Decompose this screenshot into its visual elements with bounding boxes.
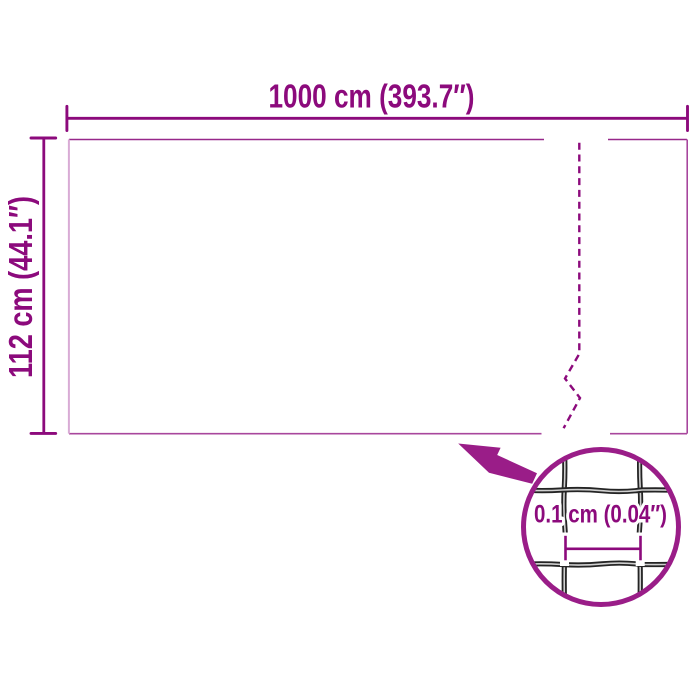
svg-text:0.1 cm (0.04″): 0.1 cm (0.04″): [534, 500, 667, 528]
svg-text:1000 cm (393.7″): 1000 cm (393.7″): [269, 78, 475, 115]
svg-text:112 cm (44.1″): 112 cm (44.1″): [2, 196, 39, 378]
